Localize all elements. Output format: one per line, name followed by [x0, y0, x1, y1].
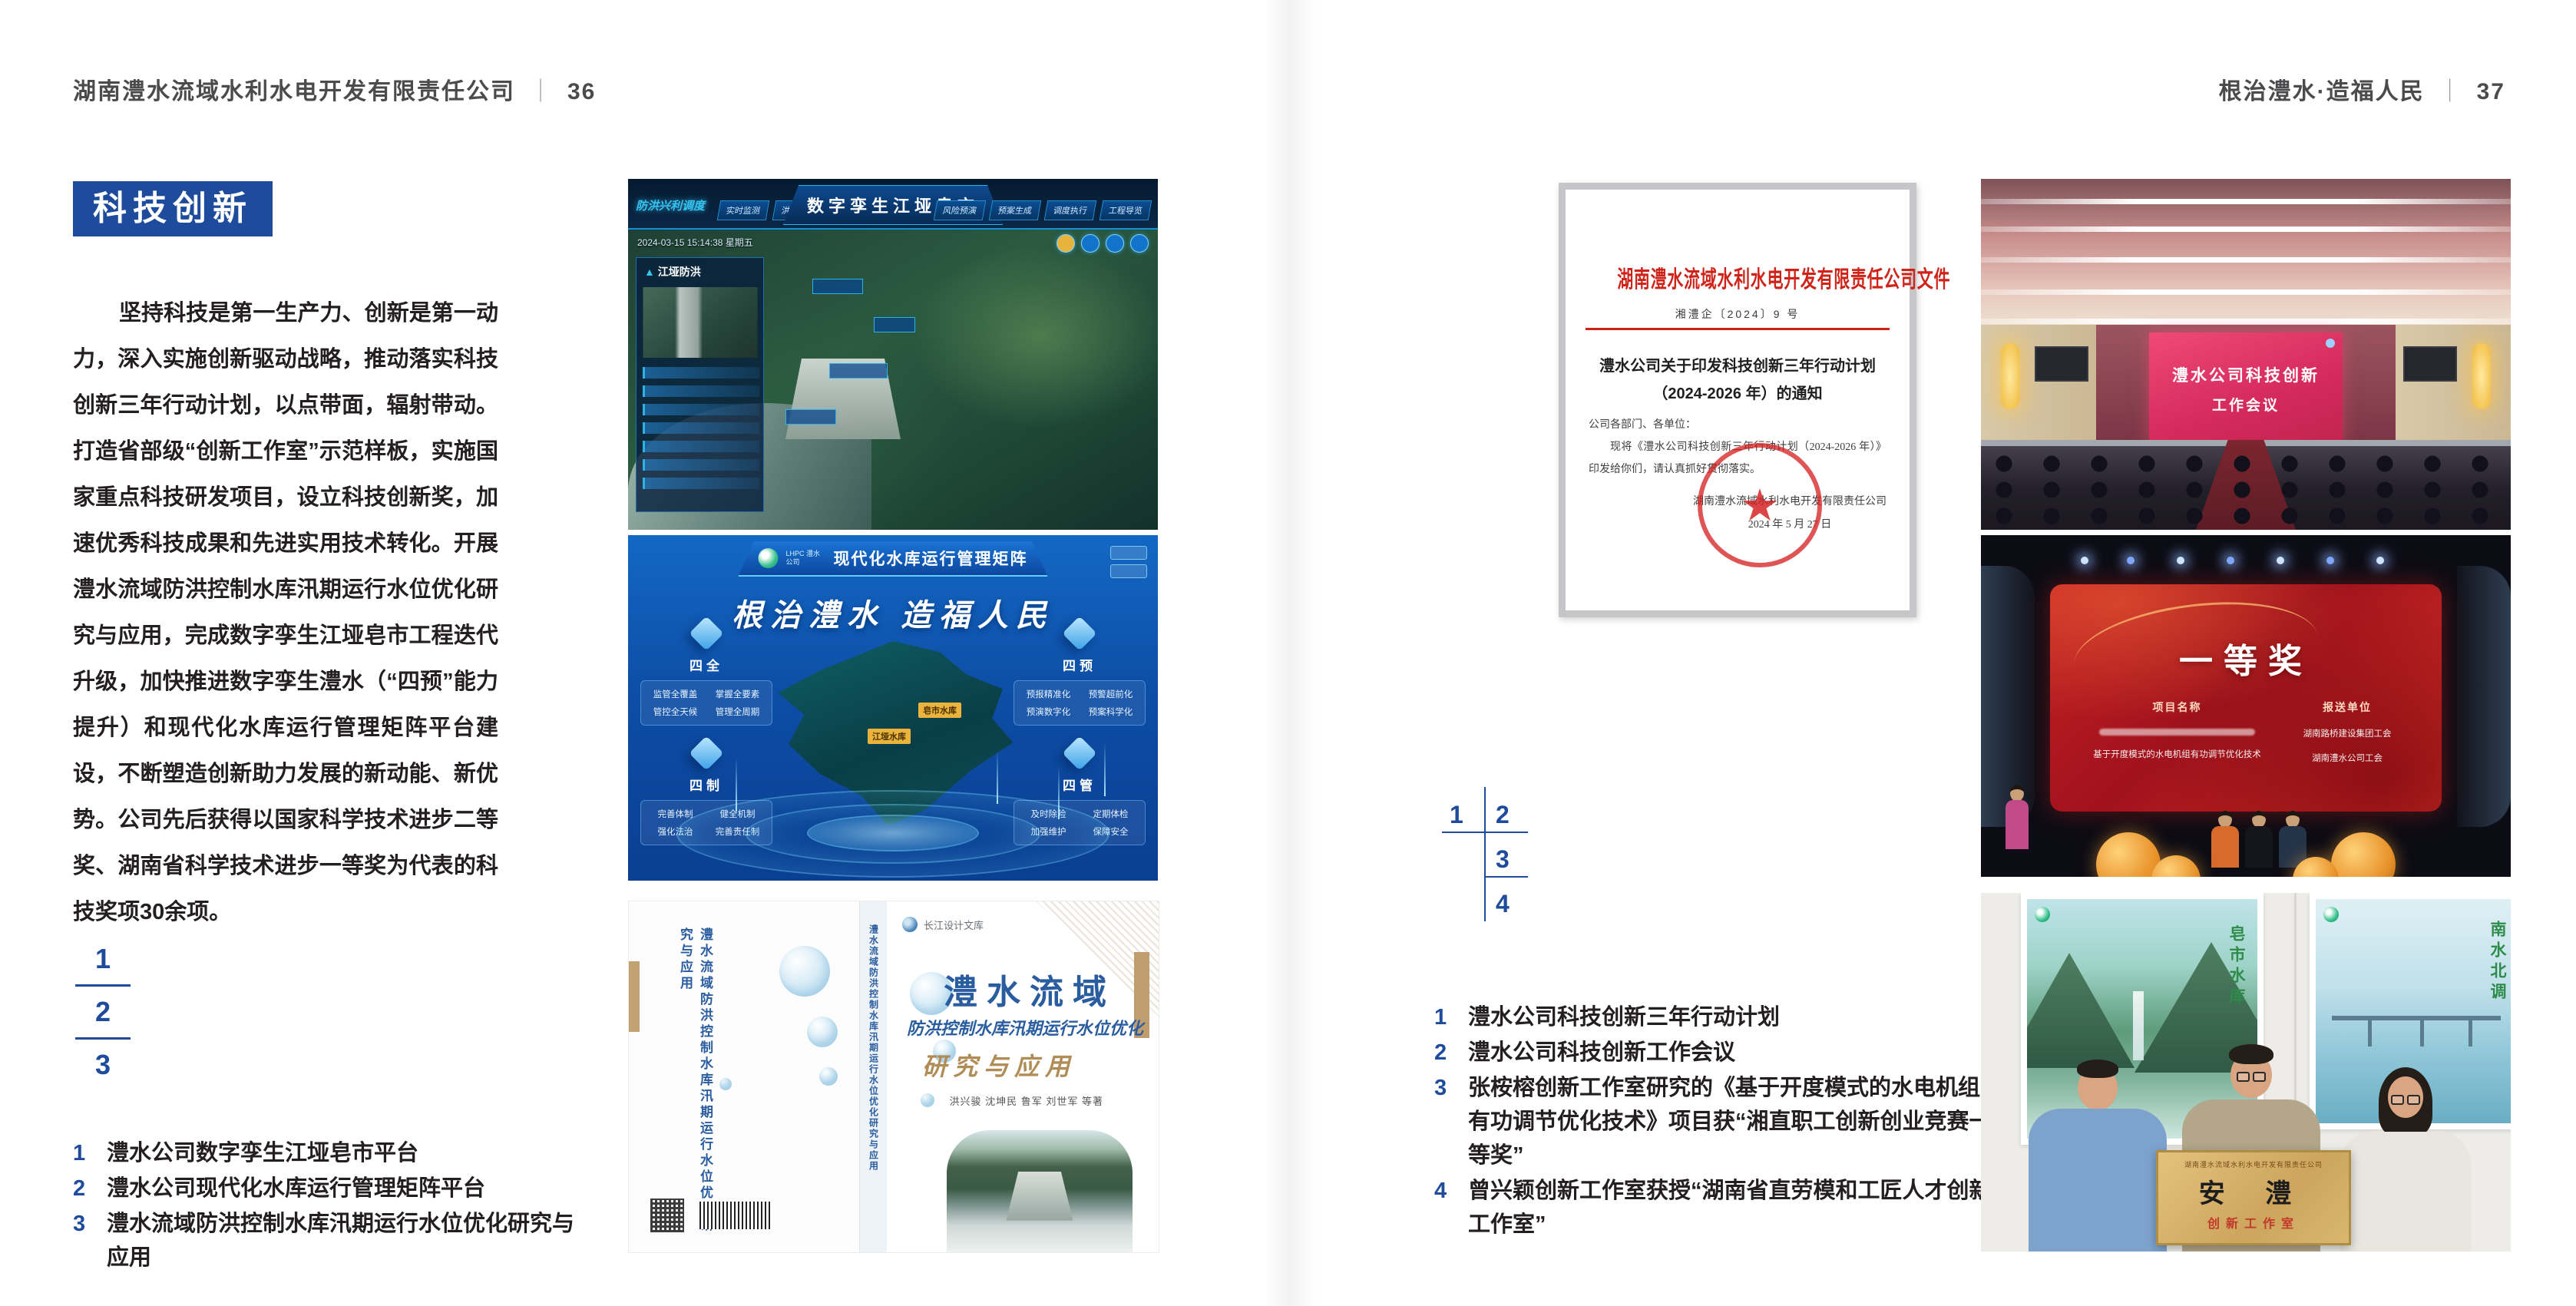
light-pillar	[1058, 765, 1060, 819]
page-header-right: 根治澧水·造福人民｜37	[2219, 72, 2505, 106]
index-divider	[75, 1037, 131, 1040]
figure-index-left: 1 2 3	[75, 943, 131, 1081]
header-divider: ｜	[529, 79, 554, 104]
stage-spotlight	[2376, 557, 2384, 564]
page-gutter	[1263, 0, 1317, 1306]
stage-spotlight	[2177, 557, 2184, 564]
poster-calligraphy: 皂市水库	[2225, 925, 2248, 1008]
logo-swirl-icon	[2323, 907, 2339, 922]
official-seal-icon	[1698, 443, 1822, 567]
matrix-title: 现代化水库运行管理矩阵	[834, 547, 1028, 570]
person-head	[2286, 811, 2300, 828]
page-number-right: 37	[2477, 79, 2505, 104]
lhpc-logo	[2035, 907, 2050, 922]
caption-text: 澧水公司现代化水库运行管理矩阵平台	[107, 1172, 485, 1205]
layers-icon	[1106, 234, 1124, 253]
person-torso	[2340, 1132, 2471, 1251]
mountain-shape	[2027, 953, 2135, 1068]
photo-innovation-studio-plaque: 皂市水库 南水北调 湖南澧水流域水利水电开发有限责任公司 安 澧 创新工作室	[1981, 893, 2511, 1251]
project-column: 项目名称 基于开度模式的水电机组有功调节优化技术	[2082, 699, 2272, 764]
index-number: 3	[95, 1049, 111, 1081]
award-led-screen: 一等奖 项目名称 基于开度模式的水电机组有功调节优化技术 报送单位 湖南路桥建设…	[2050, 584, 2442, 812]
cube-icon	[689, 736, 723, 770]
fullscreen-button	[1110, 546, 1147, 560]
light-strip	[1981, 226, 2511, 232]
header-divider: ｜	[2439, 79, 2463, 104]
barcode	[699, 1202, 770, 1229]
award-headline: 一等奖	[2050, 633, 2442, 683]
tab-risk-rehearsal: 风险预演	[934, 200, 987, 220]
dashboard-user-icons	[1057, 234, 1149, 253]
waterfall	[2133, 991, 2144, 1060]
book-back-cover: 澧水流域防洪控制水库汛期运行水位优化研究与应用	[629, 901, 859, 1252]
meeting-audience-area	[1981, 440, 2511, 530]
cube-icon	[1062, 736, 1096, 770]
data-row	[643, 459, 759, 471]
document-title: 澧水公司关于印发科技创新三年行动计划 （2024-2026 年）的通知	[1566, 352, 1910, 408]
glasses-icon	[2237, 1072, 2266, 1082]
triangle-icon: ▲	[644, 266, 658, 278]
back-cover-tab	[629, 961, 640, 1032]
index-number: 3	[1496, 845, 1510, 874]
map-tag-jiangya: 江垭水库	[868, 729, 911, 744]
index-number: 4	[1496, 890, 1510, 918]
photo-award-ceremony: 一等奖 项目名称 基于开度模式的水电机组有功调节优化技术 报送单位 湖南路桥建设…	[1981, 535, 2511, 877]
stage-spotlight	[2277, 557, 2284, 564]
person-hair	[2077, 1060, 2118, 1078]
dashboard-side-panel: ▲ 江垭防洪	[636, 257, 764, 512]
caption-row: 1 澧水公司数字孪生江垭皂市平台	[73, 1136, 580, 1170]
settings-icon	[1130, 234, 1149, 253]
caption-list-right: 1 澧水公司科技创新三年行动计划 2 澧水公司科技创新工作会议 3 张桉榕创新工…	[1434, 1000, 1995, 1243]
section-title-badge: 科技创新	[73, 181, 273, 236]
screen-text-line2: 工作会议	[2212, 394, 2280, 415]
light-pillar	[736, 758, 737, 812]
caption-number: 2	[1434, 1036, 1453, 1070]
panel-title: ▲ 江垭防洪	[637, 258, 763, 286]
caption-row: 2 澧水公司科技创新工作会议	[1434, 1036, 1995, 1070]
caption-row: 2 澧水公司现代化水库运行管理矩阵平台	[73, 1172, 580, 1205]
plaque-title: 安 澧	[2158, 1172, 2349, 1210]
tab-realtime-monitor: 实时监测	[717, 200, 770, 220]
bridge-pier	[2469, 1020, 2472, 1046]
panel-dam-photo	[643, 287, 757, 358]
matrix-header: LHPC 澧水公司 现代化水库运行管理矩阵	[739, 541, 1048, 577]
caption-number: 4	[1434, 1174, 1453, 1242]
camera-icon	[1081, 234, 1100, 253]
light-strip	[1981, 289, 2511, 295]
water-bubble	[779, 946, 830, 997]
data-row	[643, 441, 759, 452]
data-row	[643, 385, 759, 397]
spine-title: 澧水流域防洪控制水库汛期运行水位优化研究与应用	[868, 924, 881, 1232]
slogan-text: 根治澧水·造福人民	[2219, 79, 2425, 104]
group-items: 预报精准化 预警超前化 预演数字化 预案科学化	[1014, 680, 1146, 726]
award-columns: 项目名称 基于开度模式的水电机组有功调节优化技术 报送单位 湖南路桥建设集团工会…	[2082, 699, 2409, 764]
stage-side-panel	[2457, 566, 2511, 827]
index-number: 2	[95, 996, 111, 1028]
caption-number: 2	[73, 1172, 91, 1205]
dashboard-brand: 防洪兴利调度	[636, 197, 705, 213]
index-number: 1	[1450, 801, 1463, 829]
lhpc-logo	[2323, 907, 2339, 922]
logo-text: LHPC 澧水公司	[786, 550, 826, 567]
document-red-rule	[1586, 328, 1890, 330]
awardee-orange	[2211, 811, 2239, 868]
tab-plan-generate: 预案生成	[989, 200, 1042, 220]
book-title-sub: 防洪控制水库汛期运行水位优化	[907, 1015, 1143, 1040]
innovation-studio-plaque: 湖南澧水流域水利水电开发有限责任公司 安 澧 创新工作室	[2156, 1150, 2351, 1245]
bridge-pier	[2368, 1020, 2372, 1046]
wall-tv	[2403, 346, 2457, 382]
plaque-org-line: 湖南澧水流域水利水电开发有限责任公司	[2158, 1159, 2349, 1169]
poster-calligraphy: 南水北调	[2486, 921, 2509, 1003]
bridge-pier	[2420, 1020, 2424, 1046]
figure-digital-twin-dashboard: 防洪兴利调度 实时监测 洪水预报 防洪预警 数字孪生江垭皂市 风险预演 预案生成…	[628, 179, 1158, 530]
caption-row: 3 澧水流域防洪控制水库汛期运行水位优化研究与应用	[73, 1207, 580, 1275]
wall-lamp	[2472, 343, 2491, 409]
meeting-wall-left	[1981, 325, 2096, 440]
figure-index-right: 1 2 3 4	[1442, 787, 1530, 925]
photo-innovation-meeting: 澧水公司科技创新 工作会议	[1981, 179, 2511, 530]
index-number: 1	[95, 943, 111, 975]
cube-icon	[1062, 616, 1096, 650]
stage-spotlight	[2326, 557, 2334, 564]
ripple-core	[807, 815, 979, 851]
caption-row: 1 澧水公司科技创新三年行动计划	[1434, 1000, 1995, 1034]
page-number-left: 36	[567, 79, 596, 104]
back-cover-title: 澧水流域防洪控制水库汛期运行水位优化研究与应用	[675, 927, 715, 1244]
golden-orb	[2331, 832, 2396, 877]
water-bubble	[807, 1017, 838, 1047]
data-row	[643, 404, 759, 415]
company-logo-icon	[759, 548, 779, 568]
caption-list-left: 1 澧水公司数字孪生江垭皂市平台 2 澧水公司现代化水库运行管理矩阵平台 3 澧…	[73, 1136, 580, 1276]
document-salutation: 公司各部门、各单位：	[1589, 414, 1887, 436]
qr-code	[650, 1199, 684, 1232]
book-title-main: 澧水流域	[944, 964, 1116, 1013]
presenter-suit	[2245, 811, 2273, 868]
project-name: 基于开度模式的水电机组有功调节优化技术	[2082, 748, 2272, 760]
water-bubble	[921, 1093, 934, 1107]
caption-number: 1	[73, 1136, 91, 1170]
caption-text: 澧水流域防洪控制水库汛期运行水位优化研究与应用	[107, 1207, 580, 1275]
user-icon	[1057, 234, 1075, 253]
light-strip	[1981, 257, 2511, 263]
caption-text: 澧水公司科技创新三年行动计划	[1468, 1000, 1780, 1034]
index-divider	[1484, 876, 1528, 878]
index-divider	[1484, 787, 1486, 921]
matrix-group-siquan: 四全 监管全覆盖 掌握全要素 管控全天候 管理全周期	[640, 621, 772, 726]
person-hair	[2229, 1044, 2273, 1064]
body-paragraph: 坚持科技是第一生产力、创新是第一动力，深入实施创新驱动战略，推动落实科技创新三年…	[73, 290, 498, 935]
map-label-chip	[874, 317, 915, 332]
map-label-chip	[785, 409, 836, 425]
light-strip	[1981, 199, 2511, 204]
dashboard-timestamp: 2024-03-15 15:14:38 星期五	[637, 236, 753, 249]
stage-spotlight	[2081, 557, 2088, 564]
company-name: 湖南澧水流域水利水电开发有限责任公司	[73, 79, 515, 104]
caption-text: 澧水公司科技创新工作会议	[1468, 1036, 1735, 1070]
caption-text: 张桉榕创新工作室研究的《基于开度模式的水电机组有功调节优化技术》项目获“湘直职工…	[1468, 1071, 1995, 1172]
light-pillar	[997, 750, 998, 804]
document-red-title: 湖南澧水流域水利水电开发有限责任公司文件	[1617, 260, 1858, 294]
index-divider	[1442, 832, 1528, 833]
audience-heads	[1981, 453, 2511, 530]
glasses-icon	[2391, 1095, 2420, 1105]
water-bubble	[719, 1078, 732, 1090]
meeting-ceiling	[1981, 179, 2511, 325]
person-body	[2006, 800, 2029, 849]
caption-row: 3 张桉榕创新工作室研究的《基于开度模式的水电机组有功调节优化技术》项目获“湘直…	[1434, 1071, 1995, 1172]
wall-lamp	[2001, 343, 2019, 409]
wall-tv	[2035, 346, 2088, 382]
screen-text-line1: 澧水公司科技创新	[2172, 363, 2320, 386]
logo-swirl-icon	[2035, 907, 2050, 922]
index-number: 2	[1496, 801, 1510, 829]
person-body	[2211, 826, 2239, 868]
tab-dispatch-execute: 调度执行	[1044, 200, 1097, 220]
blurred-project-row	[2099, 729, 2255, 736]
figure-official-document: 湖南澧水流域水利水电开发有限责任公司文件 湘澧企〔2024〕9 号 澧水公司关于…	[1559, 183, 1916, 617]
caption-number: 3	[1434, 1071, 1453, 1172]
data-row	[643, 478, 759, 489]
caption-row: 4 曾兴颖创新工作室获授“湖南省直劳模和工匠人才创新工作室”	[1434, 1174, 1995, 1242]
refresh-button	[1110, 564, 1147, 578]
series-label: 长江设计文库	[902, 917, 984, 932]
caption-text: 曾兴颖创新工作室获授“湖南省直劳模和工匠人才创新工作室”	[1468, 1174, 1995, 1242]
dashboard-tabs-right: 风险预演 预案生成 调度执行 工程导览	[935, 200, 1150, 220]
index-divider	[75, 984, 131, 987]
data-row	[643, 367, 759, 379]
stage-spotlight	[2127, 557, 2135, 564]
figure-book-cover: 澧水流域防洪控制水库汛期运行水位优化研究与应用 澧水流域防洪控制水库汛期运行水位…	[628, 901, 1159, 1253]
group-items: 监管全覆盖 掌握全要素 管控全天候 管理全周期	[640, 680, 772, 726]
caption-number: 3	[73, 1207, 91, 1275]
stage-spotlight	[2227, 557, 2234, 564]
dashboard-top-bar: 防洪兴利调度 实时监测 洪水预报 防洪预警 数字孪生江垭皂市 风险预演 预案生成…	[628, 179, 1158, 230]
screen-logo-icon	[2326, 339, 2335, 348]
meeting-screen: 澧水公司科技创新 工作会议	[2149, 332, 2343, 445]
light-strip	[1981, 319, 2511, 324]
book-title-tail: 研究与应用	[922, 1047, 1076, 1083]
unit-name: 湖南路桥建设集团工会	[2285, 727, 2409, 739]
light-pillar	[1104, 742, 1106, 796]
man-blue-polo	[2029, 1060, 2167, 1251]
tab-project-tour: 工程导览	[1100, 200, 1152, 220]
unit-name: 湖南澧水公司工会	[2285, 752, 2409, 764]
caption-text: 澧水公司数字孪生江垭皂市平台	[107, 1136, 418, 1170]
person-head	[2218, 811, 2232, 828]
bridge-deck	[2332, 1016, 2501, 1020]
caption-number: 1	[1434, 1000, 1453, 1034]
book-authors: 洪兴骏 沈坤民 鲁军 刘世军 等著	[950, 1093, 1103, 1108]
page-header-left: 湖南澧水流域水利水电开发有限责任公司｜36	[73, 72, 596, 106]
woman-white-top	[2340, 1067, 2471, 1251]
golden-orb	[2096, 832, 2161, 877]
person-head	[2252, 811, 2266, 828]
book-spine: 澧水流域防洪控制水库汛期运行水位优化研究与应用	[859, 901, 888, 1252]
person-body	[2245, 826, 2273, 868]
series-logo-icon	[902, 917, 918, 932]
awardee-navy	[2279, 811, 2306, 868]
water-bubble	[819, 1067, 838, 1086]
cube-icon	[689, 616, 723, 650]
person-head	[2010, 785, 2024, 802]
dam-structure	[1006, 1172, 1073, 1221]
person-torso	[2029, 1109, 2167, 1251]
map-label-chip	[829, 363, 888, 379]
data-row	[643, 422, 759, 434]
matrix-group-siyu: 四预 预报精准化 预警超前化 预演数字化 预案科学化	[1014, 621, 1146, 726]
host-figure	[2006, 785, 2029, 849]
plaque-subtitle: 创新工作室	[2158, 1213, 2349, 1232]
document-number: 湘澧企〔2024〕9 号	[1566, 306, 1910, 322]
figure-matrix-platform: LHPC 澧水公司 现代化水库运行管理矩阵 根治澧水 造福人民 皂市水库 江垭水…	[628, 535, 1158, 881]
book-front-cover: 长江设计文库 澧水流域 防洪控制水库汛期运行水位优化 研究与应用 洪兴骏 沈坤民…	[887, 901, 1159, 1252]
map-label-chip	[812, 279, 863, 294]
meeting-wall-right	[2396, 325, 2511, 440]
map-tag-zaoshi: 皂市水库	[918, 703, 961, 718]
unit-column: 报送单位 湖南路桥建设集团工会 湖南澧水公司工会	[2285, 699, 2409, 764]
cover-dam-photo	[947, 1130, 1133, 1252]
